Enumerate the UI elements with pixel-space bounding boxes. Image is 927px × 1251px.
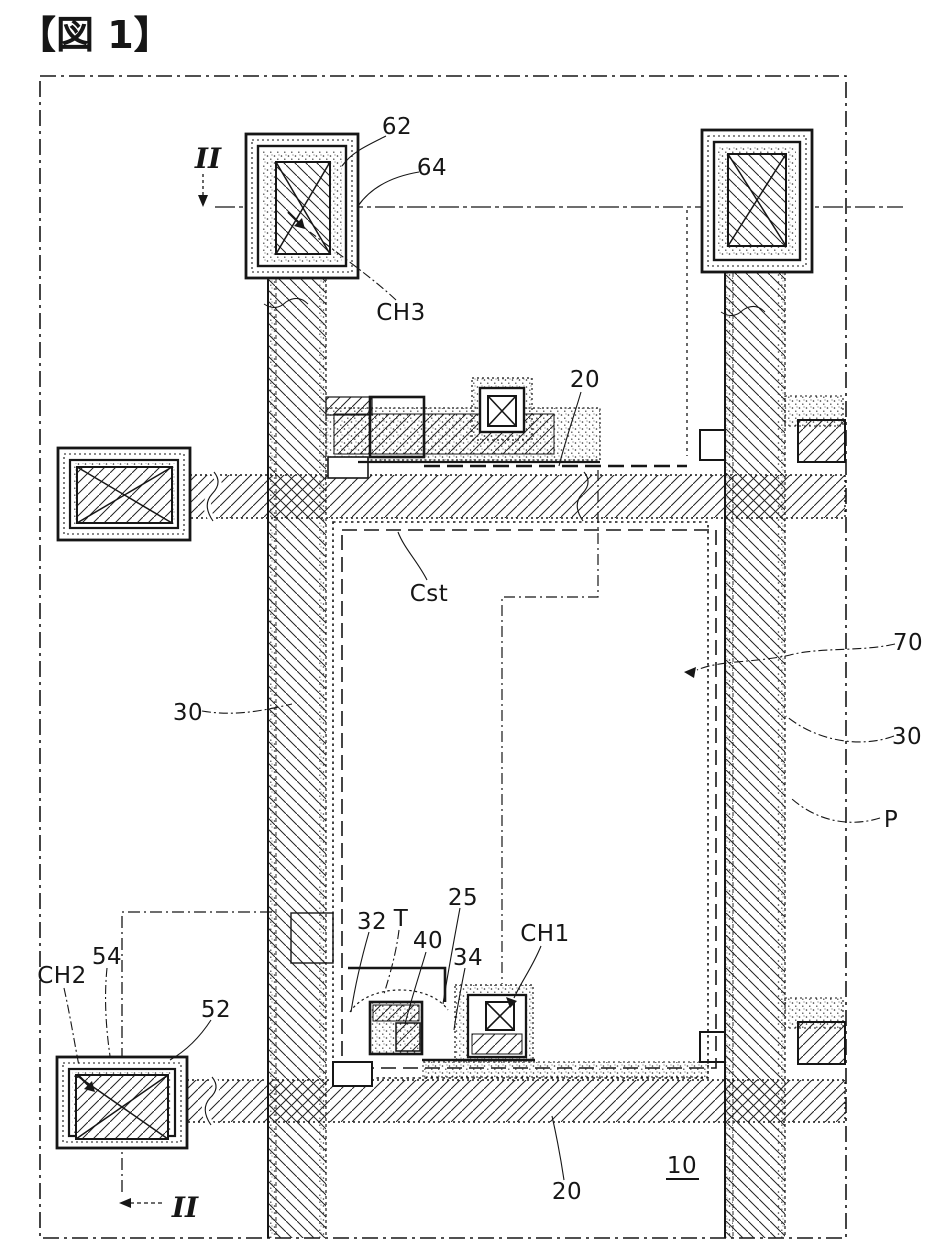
label-54: 54 <box>92 944 122 970</box>
label-62: 62 <box>382 114 412 140</box>
section-marker-top <box>198 174 208 207</box>
label-30-right: 30 <box>892 724 922 750</box>
left-pixel-outline <box>122 912 272 1192</box>
gate-pad-left-bottom <box>57 1057 187 1148</box>
gate-notch-box <box>333 1062 372 1086</box>
data-pad-top-right <box>702 130 812 272</box>
label-CH1: CH1 <box>520 921 570 947</box>
cst-structure <box>326 378 600 478</box>
figure-title: 【図 1】 <box>18 13 172 57</box>
label-34: 34 <box>453 945 483 971</box>
label-CH2: CH2 <box>37 963 87 989</box>
leader-ch2 <box>64 988 79 1066</box>
label-CH3: CH3 <box>376 300 426 326</box>
leader-52 <box>170 1020 211 1060</box>
leader-p <box>792 799 880 822</box>
leader-cst <box>398 532 427 580</box>
leader-30-right <box>786 716 894 742</box>
figure-canvas: 【図 1】 II II 62 64 CH3 20 Cst 70 30 P 30 … <box>0 0 927 1251</box>
tft-source-electrode <box>455 985 533 1061</box>
cst-connector-outline <box>502 470 598 984</box>
label-64: 64 <box>417 155 447 181</box>
data-pad-top-left <box>246 134 358 278</box>
label-20-bottom: 20 <box>552 1179 582 1205</box>
section-marker-bottom <box>119 1198 163 1208</box>
label-10: 10 <box>667 1153 697 1179</box>
section-arrow-down <box>198 195 208 207</box>
label-40: 40 <box>413 928 443 954</box>
leader-t <box>384 930 399 994</box>
section-arrow-left <box>119 1198 131 1208</box>
label-T: T <box>393 906 409 932</box>
data-line-right <box>721 266 785 1238</box>
cst-contact-hole <box>472 378 532 440</box>
gate-pad-left-top <box>58 448 190 540</box>
label-25: 25 <box>448 885 478 911</box>
label-II-bottom: II <box>171 1191 199 1224</box>
tft-drain-electrode <box>370 1002 422 1054</box>
label-20-top: 20 <box>570 367 600 393</box>
leader-64 <box>358 172 419 206</box>
label-32: 32 <box>357 909 387 935</box>
label-II-top: II <box>194 142 222 175</box>
label-52: 52 <box>201 997 231 1023</box>
cst-overlap-strip <box>423 1062 708 1077</box>
leader-32 <box>351 932 369 1012</box>
leader-54 <box>106 968 110 1056</box>
label-70: 70 <box>893 630 923 656</box>
label-P: P <box>884 807 898 833</box>
patent-figure-page: 【図 1】 II II 62 64 CH3 20 Cst 70 30 P 30 … <box>0 0 927 1251</box>
arrowhead-70 <box>684 667 696 678</box>
label-Cst: Cst <box>410 581 449 607</box>
leader-20-bottom <box>552 1116 564 1180</box>
data-line-left <box>264 272 326 1238</box>
label-30-left: 30 <box>173 700 203 726</box>
